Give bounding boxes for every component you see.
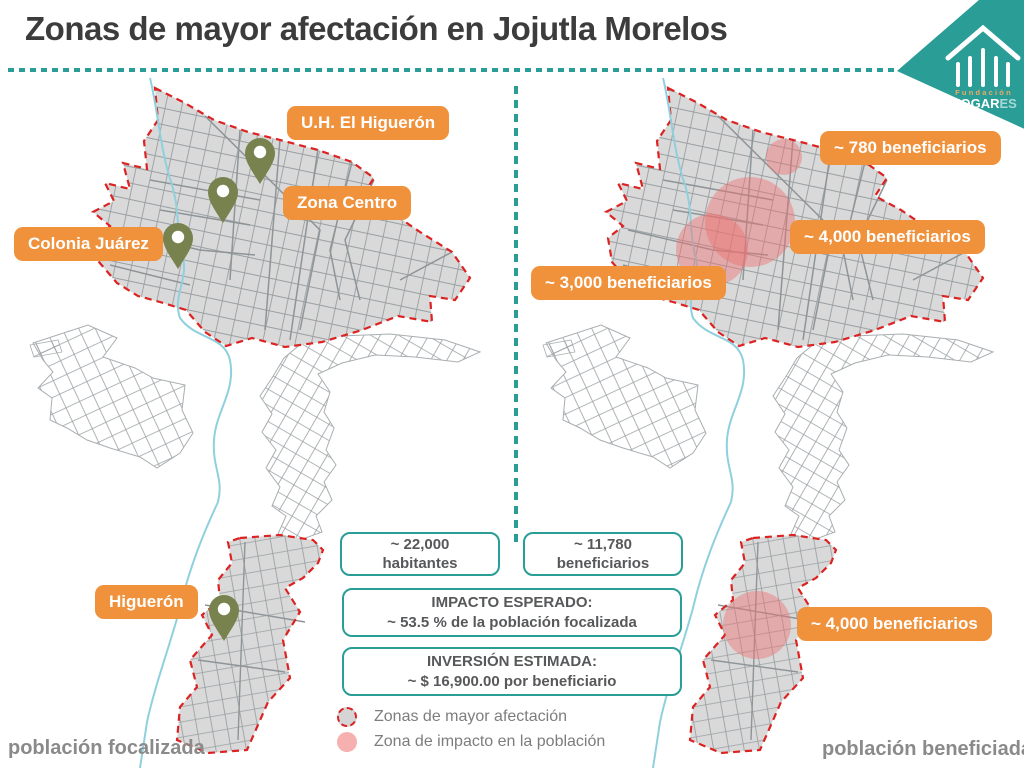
stat-box-beneficiarios: ~ 11,780 beneficiarios (523, 532, 683, 576)
legend-impacto-label: Zona de impacto en la población (374, 733, 605, 751)
stat-box-inversion: INVERSIÓN ESTIMADA: ~ $ 16,900.00 por be… (342, 647, 682, 696)
legend-row-afectacion: Zonas de mayor afectación (337, 704, 605, 729)
infographic-page: Zonas de mayor afectación en Jojutla Mor… (0, 0, 1024, 768)
pink-circle-icon (337, 732, 357, 752)
label-4000-beneficiarios: ~ 4,000 beneficiarios (790, 220, 985, 254)
label-colonia-juarez: Colonia Juárez (14, 227, 163, 261)
stat-impacto-title: IMPACTO ESPERADO: (344, 593, 680, 612)
stat-box-habitantes: ~ 22,000 habitantes (340, 532, 500, 576)
stat-box-impacto: IMPACTO ESPERADO: ~ 53.5 % de la poblaci… (342, 588, 682, 637)
caption-poblacion-beneficiada: población beneficiada (822, 738, 1024, 761)
impact-circle-4000b (723, 591, 791, 659)
label-4000-beneficiarios-sur: ~ 4,000 beneficiarios (797, 607, 992, 641)
legend: Zonas de mayor afectación Zona de impact… (337, 704, 605, 754)
stat-inversion-value: ~ $ 16,900.00 por beneficiario (344, 672, 680, 691)
page-title: Zonas de mayor afectación en Jojutla Mor… (25, 10, 727, 48)
label-zona-centro: Zona Centro (283, 186, 411, 220)
stat-beneficiarios-value: ~ 11,780 (525, 535, 681, 554)
caption-poblacion-focalizada: población focalizada (8, 737, 205, 760)
center-divider (514, 86, 518, 546)
label-780-beneficiarios: ~ 780 beneficiarios (820, 131, 1001, 165)
stat-impacto-value: ~ 53.5 % de la población focalizada (344, 613, 680, 632)
title-underline (8, 68, 897, 72)
stat-habitantes-label: habitantes (342, 554, 498, 573)
stat-beneficiarios-label: beneficiarios (525, 554, 681, 573)
dashed-circle-icon (337, 707, 357, 727)
label-3000-beneficiarios: ~ 3,000 beneficiarios (531, 266, 726, 300)
stat-inversion-title: INVERSIÓN ESTIMADA: (344, 652, 680, 671)
label-uh-el-higueron: U.H. El Higuerón (287, 106, 449, 140)
stat-habitantes-value: ~ 22,000 (342, 535, 498, 554)
label-higueron: Higuerón (95, 585, 198, 619)
impact-circle-780 (766, 139, 802, 175)
legend-row-impacto: Zona de impacto en la población (337, 729, 605, 754)
legend-afectacion-label: Zonas de mayor afectación (374, 708, 567, 726)
